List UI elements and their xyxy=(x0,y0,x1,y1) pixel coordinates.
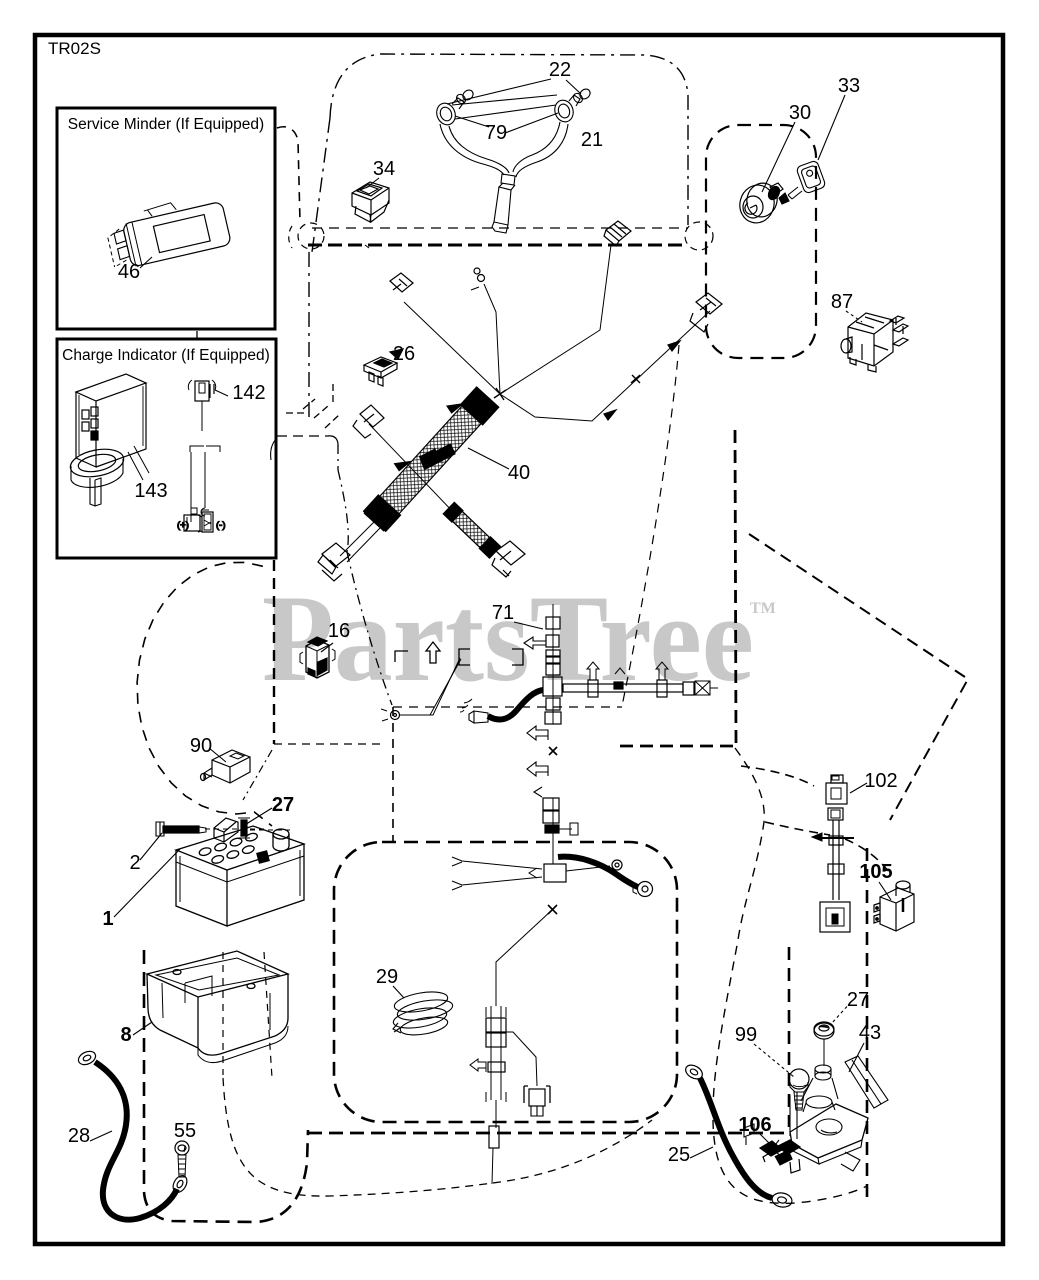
svg-text:27: 27 xyxy=(847,989,869,1011)
svg-text:99: 99 xyxy=(735,1024,757,1046)
svg-text:79: 79 xyxy=(485,122,507,144)
svg-text:30: 30 xyxy=(789,102,811,124)
svg-text:90: 90 xyxy=(190,735,212,757)
svg-text:22: 22 xyxy=(549,59,571,81)
svg-text:25: 25 xyxy=(668,1144,690,1166)
svg-text:40: 40 xyxy=(508,462,530,484)
svg-text:105: 105 xyxy=(859,861,892,883)
svg-text:43: 43 xyxy=(859,1022,881,1044)
svg-text:55: 55 xyxy=(174,1120,196,1142)
svg-text:21: 21 xyxy=(581,129,603,151)
svg-text:142: 142 xyxy=(232,382,265,404)
svg-text:87: 87 xyxy=(831,291,853,313)
svg-text:(+): (+) xyxy=(177,520,189,531)
svg-text:16: 16 xyxy=(328,620,350,642)
svg-text:8: 8 xyxy=(120,1024,131,1046)
svg-text:28: 28 xyxy=(68,1125,90,1147)
svg-text:106: 106 xyxy=(738,1114,771,1136)
svg-text:33: 33 xyxy=(838,75,860,97)
svg-text:27: 27 xyxy=(272,794,294,816)
svg-text:143: 143 xyxy=(134,480,167,502)
svg-text:1: 1 xyxy=(102,908,113,930)
svg-text:71: 71 xyxy=(492,602,514,624)
svg-text:Charge Indicator (If Equipped): Charge Indicator (If Equipped) xyxy=(62,347,270,364)
svg-text:29: 29 xyxy=(376,966,398,988)
svg-text:(-): (-) xyxy=(216,520,226,531)
svg-text:102: 102 xyxy=(864,770,897,792)
svg-text:2: 2 xyxy=(129,852,140,874)
svg-text:34: 34 xyxy=(373,158,395,180)
svg-text:46: 46 xyxy=(118,261,140,283)
svg-text:TM: TM xyxy=(750,600,776,617)
svg-text:Service Minder (If Equipped): Service Minder (If Equipped) xyxy=(68,116,264,133)
svg-text:TR02S: TR02S xyxy=(48,39,101,58)
